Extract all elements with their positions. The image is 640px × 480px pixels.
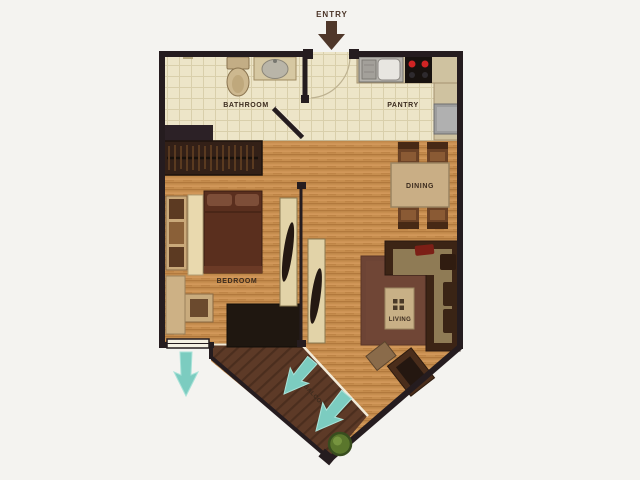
living-label: LIVING xyxy=(389,317,411,323)
dining-chair xyxy=(398,142,419,163)
floorplan-drawing: BATHROOM PANTRY DINING BEDROOM LIVING BA… xyxy=(0,0,640,480)
bedroom-window xyxy=(167,339,209,348)
dining-chair xyxy=(427,142,448,163)
dining-chair xyxy=(427,206,448,229)
wall-cap xyxy=(301,95,309,103)
sliding-panel xyxy=(279,198,297,306)
entry-jamb xyxy=(349,49,359,59)
stove-icon xyxy=(405,57,432,83)
red-pillow xyxy=(415,244,435,256)
dining-label: DINING xyxy=(406,183,434,190)
bedroom-label: BEDROOM xyxy=(217,278,258,285)
bedside-bench xyxy=(188,195,203,275)
wardrobe-hanger-rack xyxy=(163,141,262,175)
bedroom-cabinet xyxy=(166,276,185,334)
vanity-basin-icon xyxy=(254,57,296,80)
entry-label: ENTRY xyxy=(316,10,348,19)
divider-cap xyxy=(297,182,306,189)
kitchen-sink-icon xyxy=(359,57,403,82)
toilet-icon xyxy=(227,57,249,96)
plant-icon xyxy=(329,433,351,455)
bathroom-label: BATHROOM xyxy=(223,102,269,109)
tv-cabinet xyxy=(227,304,302,347)
entry-jamb xyxy=(303,49,313,59)
bed xyxy=(204,191,262,273)
divider-cap xyxy=(297,340,306,347)
bedside-shelf xyxy=(166,196,187,270)
dining-chair xyxy=(398,206,419,229)
pantry-label: PANTRY xyxy=(387,102,419,109)
floorplan-page: BATHROOM PANTRY DINING BEDROOM LIVING BA… xyxy=(0,0,640,480)
fridge-icon xyxy=(434,104,461,134)
sliding-panel xyxy=(308,239,325,343)
closet-shelf xyxy=(163,125,213,141)
bedroom-side-table xyxy=(185,294,213,322)
